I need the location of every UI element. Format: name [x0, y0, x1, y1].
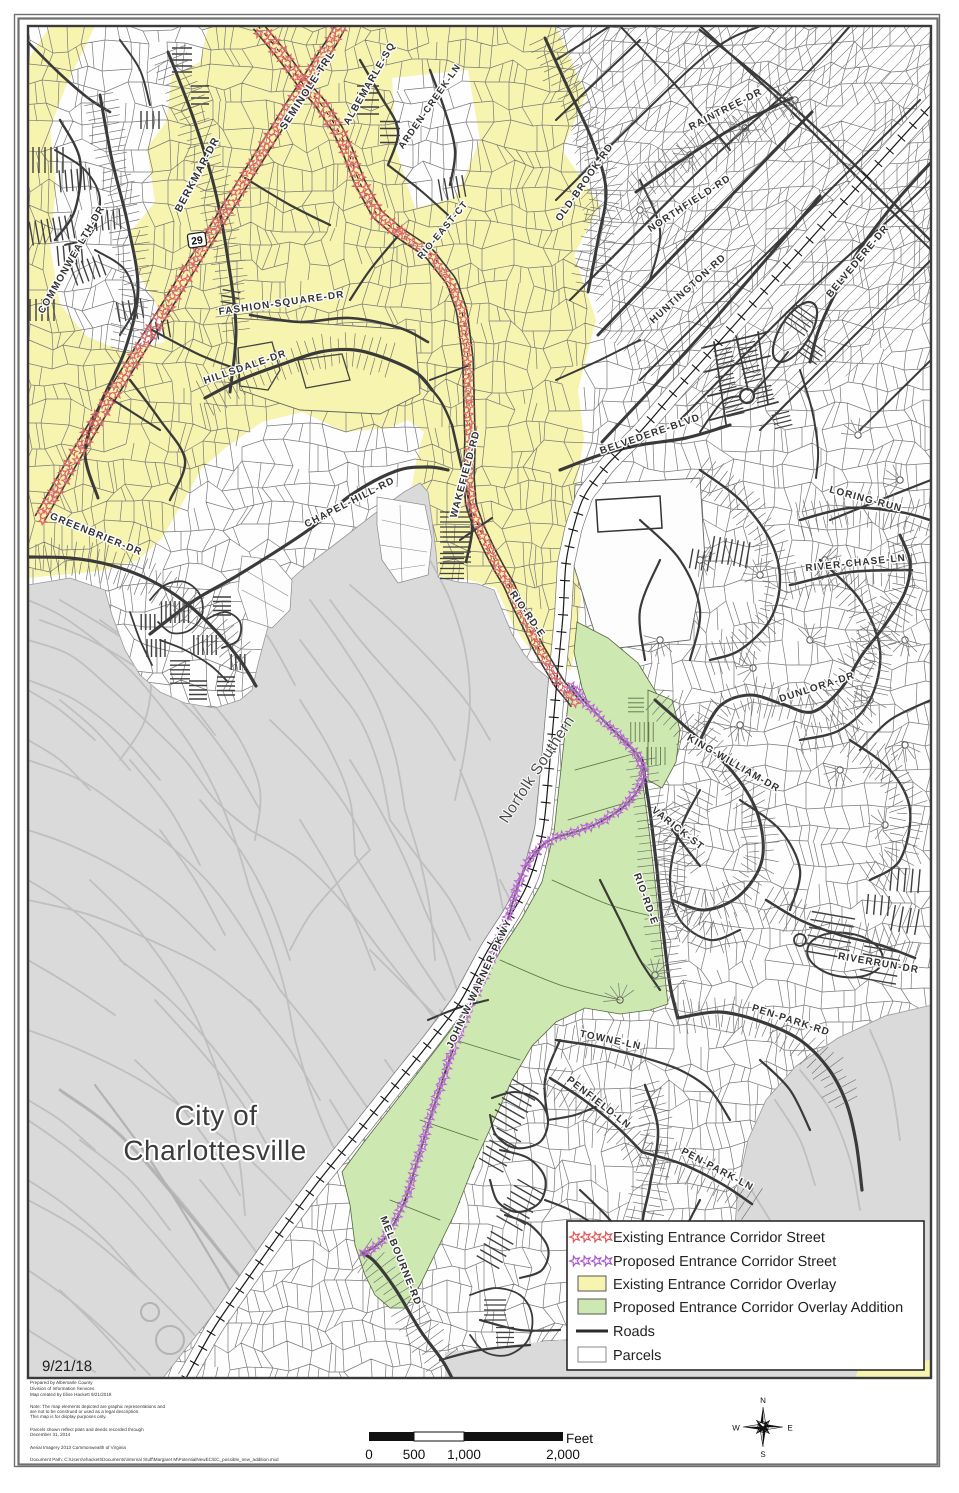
svg-text:Feet: Feet [566, 1431, 593, 1446]
svg-text:Map created by Elise Hackett 9: Map created by Elise Hackett 9/21/2018 [30, 1392, 112, 1397]
svg-text:Aerial Imagery 2013 Commonweal: Aerial Imagery 2013 Commonwealth of Virg… [30, 1445, 126, 1450]
svg-text:Document Path: C:\Users\ehacke: Document Path: C:\Users\ehackett\Documen… [30, 1457, 279, 1462]
svg-text:Existing Entrance Corridor Str: Existing Entrance Corridor Street [613, 1230, 825, 1246]
svg-text:Parcels: Parcels [613, 1348, 661, 1364]
svg-text:1,000: 1,000 [447, 1447, 481, 1462]
svg-text:Proposed Entrance Corridor Ove: Proposed Entrance Corridor Overlay Addit… [613, 1300, 903, 1316]
svg-text:December 31, 2014: December 31, 2014 [30, 1432, 71, 1437]
svg-text:N: N [760, 1396, 766, 1405]
svg-text:9/21/18: 9/21/18 [42, 1358, 92, 1375]
svg-text:City of: City of [175, 1100, 258, 1131]
svg-text:Charlottesville: Charlottesville [123, 1135, 306, 1166]
svg-text:S: S [760, 1450, 765, 1459]
svg-text:0: 0 [365, 1447, 373, 1462]
svg-text:This map is for display purpos: This map is for display purposes only. [30, 1414, 107, 1419]
svg-text:Roads: Roads [613, 1324, 655, 1340]
svg-text:Prepared by Albemarle County: Prepared by Albemarle County [30, 1380, 93, 1385]
svg-text:2,000: 2,000 [546, 1447, 580, 1462]
svg-text:E: E [787, 1424, 792, 1433]
svg-text:W: W [732, 1424, 740, 1433]
svg-text:500: 500 [403, 1447, 426, 1462]
svg-text:Division of Information Servic: Division of Information Services [30, 1386, 95, 1391]
svg-text:Proposed Entrance Corridor Str: Proposed Entrance Corridor Street [613, 1254, 836, 1270]
svg-text:29: 29 [191, 234, 204, 248]
svg-text:Existing Entrance Corridor Ove: Existing Entrance Corridor Overlay [613, 1277, 837, 1293]
